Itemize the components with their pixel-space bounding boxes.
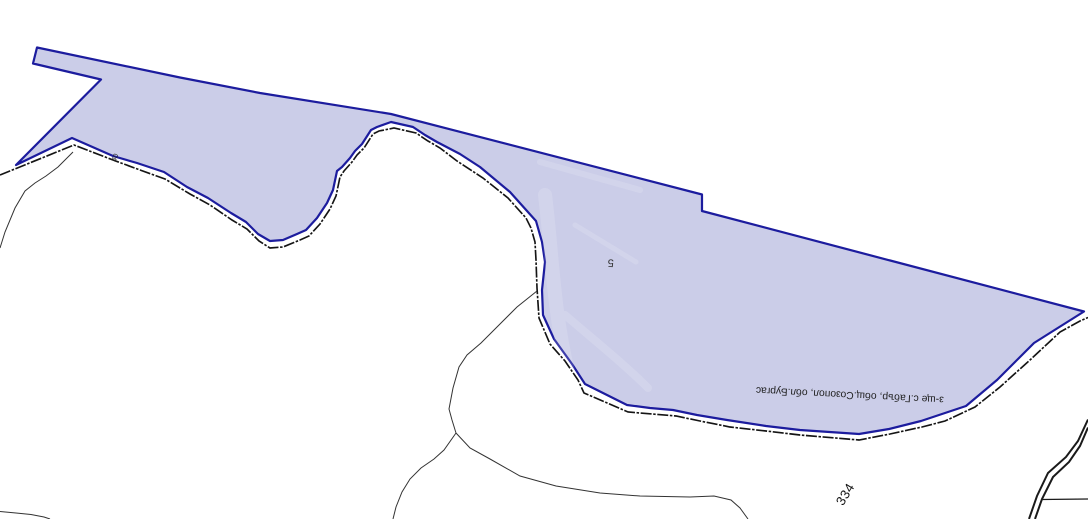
svg-text:5: 5 (607, 256, 614, 268)
